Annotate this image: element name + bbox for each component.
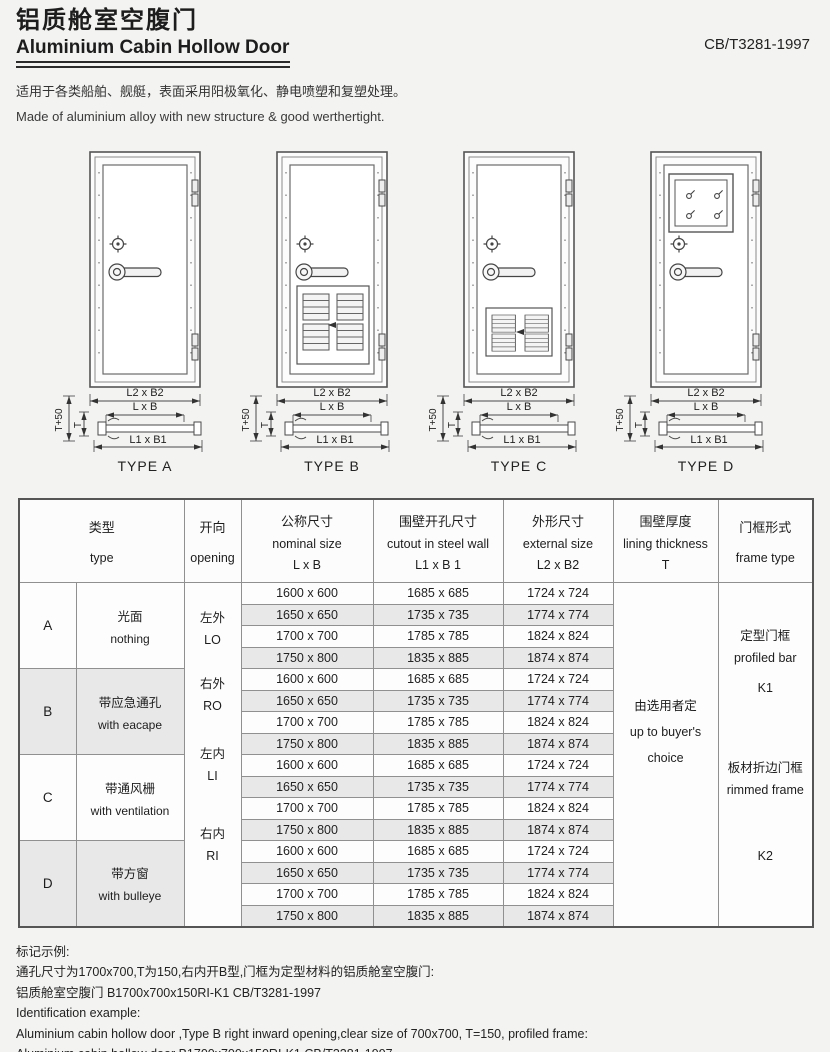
col-header-cutout-zh: 围壁开孔尺寸 [374, 511, 503, 530]
frame-zh: 板材折边门框 [719, 757, 813, 779]
type-desc-en: with ventilation [77, 804, 184, 818]
page-title-en: Aluminium Cabin Hollow Door [16, 36, 812, 59]
dim-label-t50: T+50 [615, 408, 626, 432]
type-description: 光面nothing [76, 583, 184, 669]
col-header-cutout: 围壁开孔尺寸 cutout in steel wall L1 x B 1 [373, 499, 503, 583]
opening-zh: 左内 [185, 743, 241, 765]
external-size-cell: 1774 x 774 [503, 862, 613, 884]
door-outline [277, 152, 387, 387]
dim-label-t: T [447, 422, 458, 428]
door-figure-type-c: L2 x B2 L x B L1 x B1 T+50 T TYPE C [429, 144, 616, 478]
square-window [669, 174, 733, 232]
example-desc-en: Aluminium cabin hollow door ,Type B righ… [16, 1024, 812, 1045]
frame-label: 板材折边门框rimmed frame [719, 757, 813, 801]
nominal-size-cell: 1650 x 650 [241, 604, 373, 626]
lining-column: 由选用者定up to buyer'schoice [613, 583, 718, 927]
dim-label-outer: L2 x B2 [500, 387, 537, 399]
frame-label: 定型门框profiled bar [719, 625, 813, 669]
col-header-nominal-en: nominal size [242, 537, 373, 551]
frame-code: K1 [719, 677, 813, 699]
col-header-external-sub: L2 x B2 [504, 558, 613, 572]
external-size-cell: 1874 x 874 [503, 733, 613, 755]
figure-caption: TYPE D [678, 458, 735, 474]
nominal-size-cell: 1750 x 800 [241, 819, 373, 841]
col-header-frame-en: frame type [719, 551, 813, 565]
type-desc-en: with eacape [77, 718, 184, 732]
cutout-size-cell: 1785 x 785 [373, 884, 503, 906]
cutout-size-cell: 1735 x 735 [373, 690, 503, 712]
lining-column-content: 由选用者定up to buyer'schoice [614, 583, 718, 926]
external-size-cell: 1824 x 824 [503, 798, 613, 820]
frame-column-content: 定型门框profiled barK1板材折边门框rimmed frameK2 [719, 583, 813, 926]
cutout-size-cell: 1685 x 685 [373, 841, 503, 863]
dim-label-nominal: L x B [133, 401, 158, 413]
col-header-opening-en: opening [185, 551, 241, 565]
dim-label-cutout: L1 x B1 [129, 434, 166, 446]
dim-label-nominal: L x B [320, 401, 345, 413]
dim-label-cutout: L1 x B1 [503, 434, 540, 446]
col-header-nominal: 公称尺寸 nominal size L x B [241, 499, 373, 583]
nominal-size-cell: 1600 x 600 [241, 755, 373, 777]
nominal-size-cell: 1650 x 650 [241, 862, 373, 884]
dim-label-t50: T+50 [54, 408, 65, 432]
opening-zh: 右外 [185, 673, 241, 695]
lining-en: up to buyer's [614, 719, 718, 745]
door-outline [464, 152, 574, 387]
type-description: 带应急通孔with eacape [76, 669, 184, 755]
type-desc-en: with bulleye [77, 889, 184, 903]
opening-label: 左外LO [185, 607, 241, 651]
opening-label: 右外RO [185, 673, 241, 717]
frame-en: profiled bar [719, 647, 813, 669]
door-outline [90, 152, 200, 387]
col-header-type-en: type [20, 551, 184, 565]
figure-caption: TYPE C [491, 458, 548, 474]
type-letter: B [19, 669, 76, 755]
title-underline [16, 61, 290, 68]
external-size-cell: 1724 x 724 [503, 841, 613, 863]
external-size-cell: 1774 x 774 [503, 776, 613, 798]
opening-en: LO [185, 629, 241, 651]
col-header-external: 外形尺寸 external size L2 x B2 [503, 499, 613, 583]
table-header-row: 类型 type 开向 opening 公称尺寸 nominal size L x… [19, 499, 813, 583]
dim-label-t: T [260, 422, 271, 428]
type-letter: D [19, 841, 76, 927]
col-header-type-zh: 类型 [20, 517, 184, 536]
dim-label-t50: T+50 [428, 408, 439, 432]
frame-en: rimmed frame [719, 779, 813, 801]
size-row: A光面nothing左外LO右外RO左内LI右内RI1600 x 6001685… [19, 583, 813, 605]
nominal-size-cell: 1750 x 800 [241, 647, 373, 669]
cutout-size-cell: 1685 x 685 [373, 669, 503, 691]
opening-zh: 右内 [185, 823, 241, 845]
dim-label-t50: T+50 [241, 408, 252, 432]
opening-column-content: 左外LO右外RO左内LI右内RI [185, 583, 241, 926]
lining-note: 由选用者定up to buyer'schoice [614, 693, 718, 771]
cutout-size-cell: 1785 x 785 [373, 798, 503, 820]
door-figures-row: L2 x B2 L x B L1 x B1 T+50 T TYPE A L2 x… [0, 144, 830, 478]
opening-en: RI [185, 845, 241, 867]
catalog-page: 铝质舱室空腹门 Aluminium Cabin Hollow Door CB/T… [0, 0, 830, 1052]
col-header-opening-zh: 开向 [185, 517, 241, 536]
opening-label: 右内RI [185, 823, 241, 867]
frame-code: K2 [719, 845, 813, 867]
type-desc-en: nothing [77, 632, 184, 646]
cutout-size-cell: 1835 x 885 [373, 733, 503, 755]
cutout-size-cell: 1785 x 785 [373, 626, 503, 648]
dim-label-cutout: L1 x B1 [690, 434, 727, 446]
dim-label-t: T [73, 422, 84, 428]
cutout-size-cell: 1685 x 685 [373, 583, 503, 605]
col-header-frame: 门框形式 frame type [718, 499, 813, 583]
cutout-size-cell: 1835 x 885 [373, 647, 503, 669]
nominal-size-cell: 1600 x 600 [241, 669, 373, 691]
frame-label: K2 [719, 845, 813, 867]
external-size-cell: 1824 x 824 [503, 712, 613, 734]
cutout-size-cell: 1835 x 885 [373, 819, 503, 841]
cutout-size-cell: 1785 x 785 [373, 712, 503, 734]
nominal-size-cell: 1700 x 700 [241, 626, 373, 648]
dim-label-nominal: L x B [694, 401, 719, 413]
nominal-size-cell: 1700 x 700 [241, 712, 373, 734]
col-header-lining-en: lining thickness [614, 537, 718, 551]
external-size-cell: 1824 x 824 [503, 626, 613, 648]
example-desc-zh: 通孔尺寸为1700x700,T为150,右内开B型,门框为定型材料的铝质舱室空腹… [16, 962, 812, 983]
opening-label: 左内LI [185, 743, 241, 787]
opening-column: 左外LO右外RO左内LI右内RI [184, 583, 241, 927]
col-header-cutout-sub: L1 x B 1 [374, 558, 503, 572]
col-header-nominal-sub: L x B [242, 558, 373, 572]
dim-label-outer: L2 x B2 [313, 387, 350, 399]
identification-example: 标记示例: 通孔尺寸为1700x700,T为150,右内开B型,门框为定型材料的… [16, 942, 812, 1052]
cutout-size-cell: 1835 x 885 [373, 905, 503, 927]
intro-text-zh: 适用于各类船舶、舰艇，表面采用阳极氧化、静电喷塑和复塑处理。 [16, 81, 830, 100]
figure-caption: TYPE B [304, 458, 360, 474]
door-figure-type-b: L2 x B2 L x B L1 x B1 T+50 T TYPE B [242, 144, 429, 478]
cutout-size-cell: 1735 x 735 [373, 776, 503, 798]
external-size-cell: 1774 x 774 [503, 690, 613, 712]
external-size-cell: 1824 x 824 [503, 884, 613, 906]
example-label-en: Identification example: [16, 1003, 812, 1024]
example-code-en: Aluminium cabin hollow door B1700x700x15… [16, 1044, 812, 1052]
opening-en: LI [185, 765, 241, 787]
col-header-nominal-zh: 公称尺寸 [242, 511, 373, 530]
col-header-lining-zh: 围壁厚度 [614, 511, 718, 530]
type-description: 带方窗with bulleye [76, 841, 184, 927]
type-letter: A [19, 583, 76, 669]
nominal-size-cell: 1750 x 800 [241, 733, 373, 755]
frame-label: K1 [719, 677, 813, 699]
col-header-cutout-en: cutout in steel wall [374, 537, 503, 551]
cutout-size-cell: 1735 x 735 [373, 604, 503, 626]
example-label-zh: 标记示例: [16, 942, 812, 963]
type-desc-zh: 带方窗 [77, 863, 184, 882]
type-desc-zh: 带通风栅 [77, 778, 184, 797]
nominal-size-cell: 1600 x 600 [241, 841, 373, 863]
dim-label-t: T [634, 422, 645, 428]
dim-label-cutout: L1 x B1 [316, 434, 353, 446]
intro-text-en: Made of aluminium alloy with new structu… [16, 109, 830, 124]
size-table-body: A光面nothing左外LO右外RO左内LI右内RI1600 x 6001685… [19, 583, 813, 927]
lining-en: choice [614, 745, 718, 771]
type-description: 带通风栅with ventilation [76, 755, 184, 841]
col-header-external-en: external size [504, 537, 613, 551]
nominal-size-cell: 1700 x 700 [241, 798, 373, 820]
cutout-size-cell: 1735 x 735 [373, 862, 503, 884]
frame-column: 定型门框profiled barK1板材折边门框rimmed frameK2 [718, 583, 813, 927]
dimension-table: 类型 type 开向 opening 公称尺寸 nominal size L x… [18, 498, 814, 928]
type-letter: C [19, 755, 76, 841]
col-header-frame-zh: 门框形式 [719, 517, 813, 536]
dim-label-outer: L2 x B2 [687, 387, 724, 399]
door-figure-type-a: L2 x B2 L x B L1 x B1 T+50 T TYPE A [55, 144, 242, 478]
nominal-size-cell: 1650 x 650 [241, 776, 373, 798]
dim-label-outer: L2 x B2 [126, 387, 163, 399]
cutout-size-cell: 1685 x 685 [373, 755, 503, 777]
col-header-opening: 开向 opening [184, 499, 241, 583]
external-size-cell: 1874 x 874 [503, 905, 613, 927]
col-header-type: 类型 type [19, 499, 184, 583]
page-header: 铝质舱室空腹门 Aluminium Cabin Hollow Door CB/T… [0, 0, 830, 68]
external-size-cell: 1774 x 774 [503, 604, 613, 626]
type-desc-zh: 带应急通孔 [77, 692, 184, 711]
page-title-zh: 铝质舱室空腹门 [16, 7, 812, 35]
nominal-size-cell: 1650 x 650 [241, 690, 373, 712]
example-code-zh: 铝质舱室空腹门 B1700x700x150RI-K1 CB/T3281-1997 [16, 983, 812, 1004]
col-header-external-zh: 外形尺寸 [504, 511, 613, 530]
frame-zh: 定型门框 [719, 625, 813, 647]
type-desc-zh: 光面 [77, 606, 184, 625]
figure-caption: TYPE A [117, 458, 172, 474]
opening-en: RO [185, 695, 241, 717]
door-figure-type-d: L2 x B2 L x B L1 x B1 T+50 T TYPE D [616, 144, 803, 478]
col-header-lining-sub: T [614, 558, 718, 572]
lining-zh: 由选用者定 [614, 693, 718, 719]
opening-zh: 左外 [185, 607, 241, 629]
nominal-size-cell: 1750 x 800 [241, 905, 373, 927]
col-header-lining: 围壁厚度 lining thickness T [613, 499, 718, 583]
external-size-cell: 1874 x 874 [503, 647, 613, 669]
nominal-size-cell: 1600 x 600 [241, 583, 373, 605]
dim-label-nominal: L x B [507, 401, 532, 413]
external-size-cell: 1724 x 724 [503, 755, 613, 777]
standard-number: CB/T3281-1997 [704, 36, 810, 53]
external-size-cell: 1874 x 874 [503, 819, 613, 841]
external-size-cell: 1724 x 724 [503, 583, 613, 605]
nominal-size-cell: 1700 x 700 [241, 884, 373, 906]
external-size-cell: 1724 x 724 [503, 669, 613, 691]
